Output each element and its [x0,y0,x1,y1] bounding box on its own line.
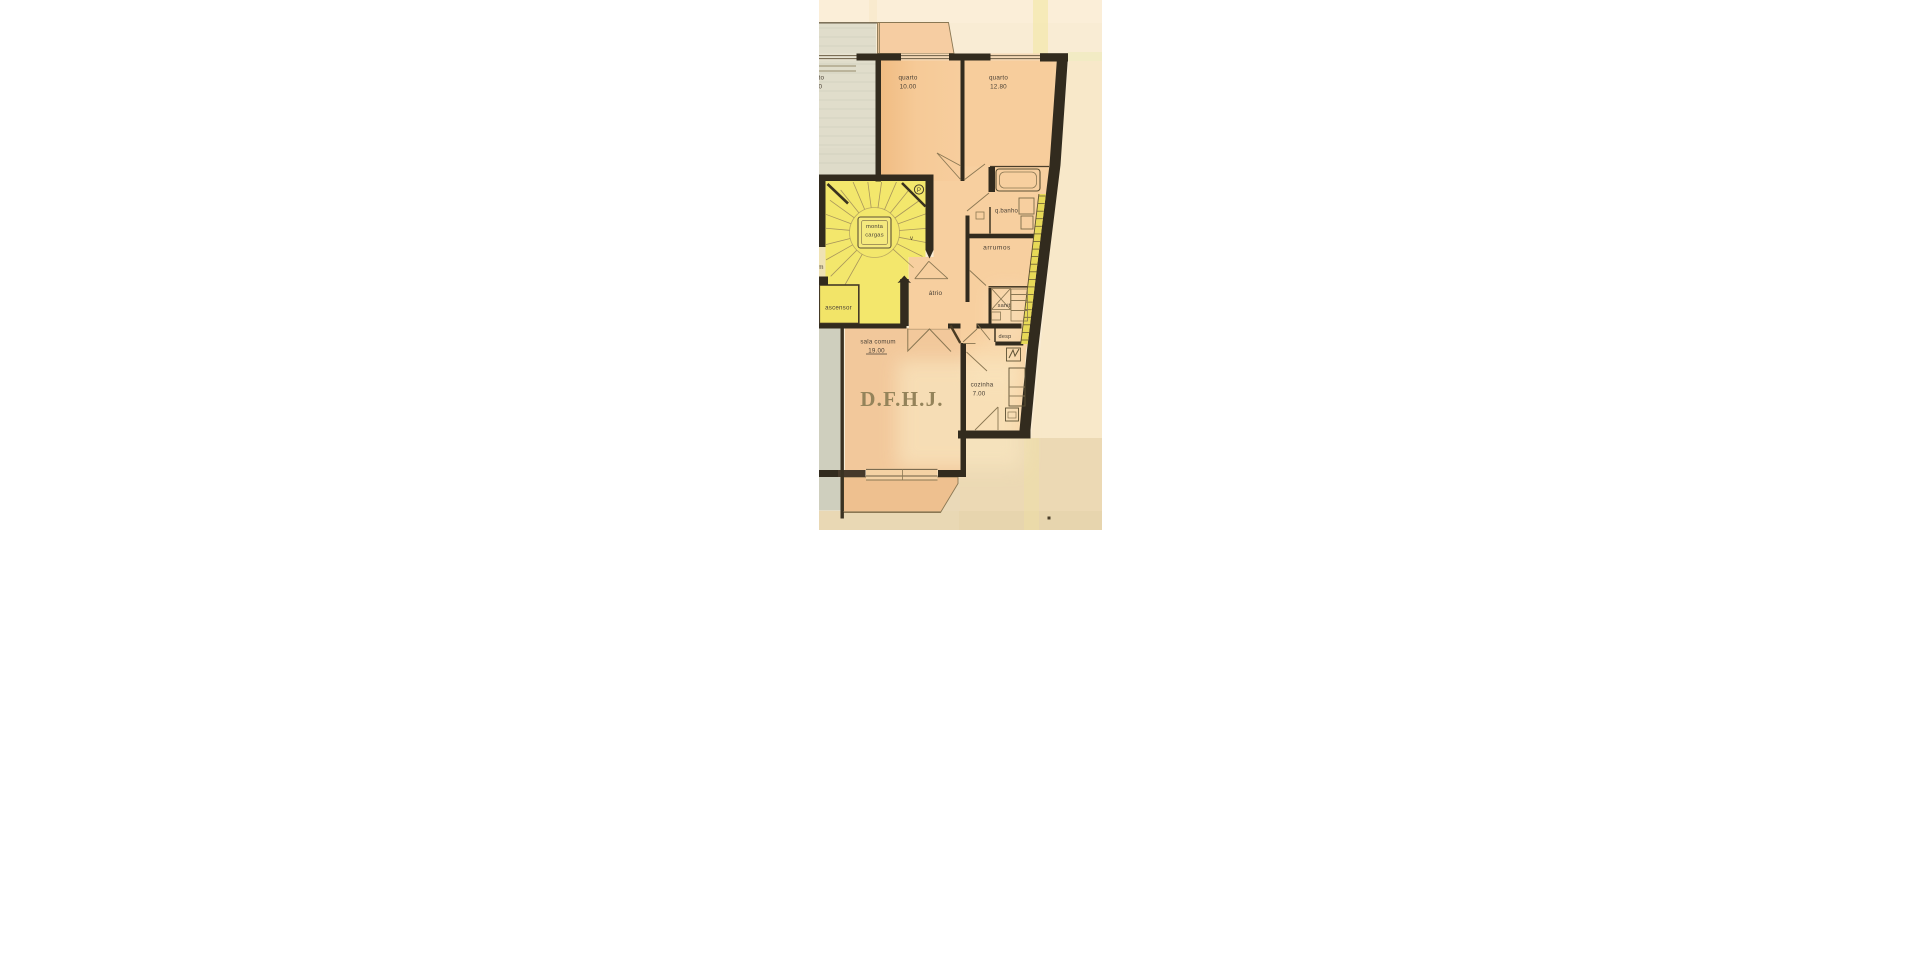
svg-text:arrumos: arrumos [983,245,1011,252]
svg-text:P: P [917,187,921,194]
svg-text:ascensor: ascensor [825,305,852,312]
svg-text:desp: desp [999,334,1012,340]
svg-text:10.00: 10.00 [900,84,917,91]
svg-text:cozinha: cozinha [971,382,994,389]
svg-text:m: m [819,264,824,271]
svg-text:quarto: quarto [989,75,1008,82]
svg-text:cargas: cargas [865,233,884,239]
svg-text:sala comum: sala comum [860,339,895,346]
svg-text:quarto: quarto [898,75,917,82]
svg-text:monta: monta [866,224,884,230]
svg-text:sanit: sanit [998,303,1011,309]
svg-text:0: 0 [819,84,823,91]
svg-text:12.80: 12.80 [990,84,1007,91]
svg-text:D.F.H.J.: D.F.H.J. [860,387,944,411]
svg-text:átrio: átrio [929,290,943,297]
svg-text:to: to [819,75,824,82]
svg-text:7.00: 7.00 [973,391,986,398]
svg-text:q.banho: q.banho [995,209,1019,215]
svg-text:v: v [910,236,913,242]
svg-text:19.00: 19.00 [868,348,885,355]
